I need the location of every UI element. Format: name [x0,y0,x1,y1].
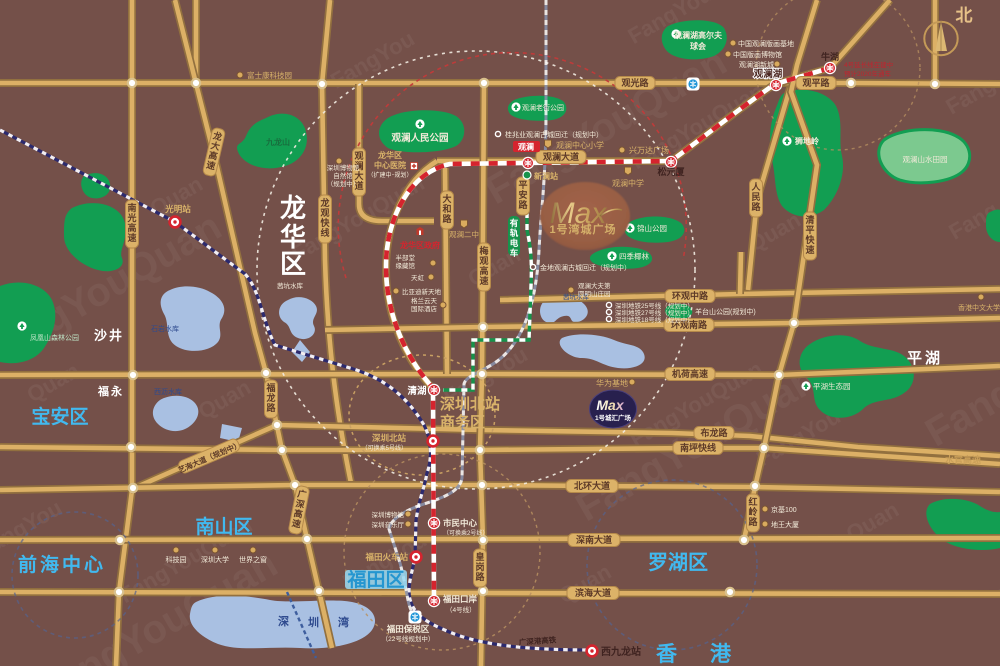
svg-text:西九龙站: 西九龙站 [601,645,641,658]
svg-text:梅观高速: 梅观高速 [479,245,488,286]
svg-text:大和路: 大和路 [441,193,452,224]
svg-text:深圳北站: 深圳北站 [372,433,407,443]
svg-text:观澜湖高尔夫: 观澜湖高尔夫 [674,30,723,40]
svg-text:深圳博物馆: 深圳博物馆 [372,510,405,519]
svg-text:观平路: 观平路 [802,77,830,88]
svg-text:北环大道: 北环大道 [574,480,610,491]
svg-text:科技园: 科技园 [166,555,187,564]
svg-text:人民路: 人民路 [750,181,761,212]
svg-text:滨海大道: 滨海大道 [575,587,611,598]
svg-text:天虹: 天虹 [411,273,425,282]
svg-text:北: 北 [956,6,973,25]
svg-text:球会: 球会 [690,41,706,51]
svg-text:观澜中学: 观澜中学 [612,178,644,188]
svg-text:南光高速: 南光高速 [126,202,136,243]
svg-text:商务区: 商务区 [440,413,485,431]
svg-text:清平快速: 清平快速 [805,214,815,255]
svg-text:平安路: 平安路 [518,180,528,210]
svg-text:深圳大学: 深圳大学 [201,555,229,564]
svg-text:中国观澜版画基地: 中国观澜版画基地 [738,39,794,48]
svg-text:观澜人民公园: 观澜人民公园 [390,132,448,144]
svg-text:深南大道: 深南大道 [576,534,612,545]
svg-text:深圳地铁27号线（规划中）: 深圳地铁27号线（规划中） [615,308,694,317]
svg-text:锦山公园: 锦山公园 [637,223,667,233]
svg-text:观光路: 观光路 [621,77,649,88]
svg-text:龙华区: 龙华区 [280,193,306,279]
svg-text:光明站: 光明站 [164,204,191,214]
svg-text:比亚迪新天地: 比亚迪新天地 [402,287,442,296]
svg-text:观澜湖新城: 观澜湖新城 [739,60,774,69]
svg-text:布龙路: 布龙路 [699,427,728,438]
svg-text:平湖生态园: 平湖生态园 [813,381,851,391]
svg-text:1号湾城广场: 1号湾城广场 [549,222,616,236]
svg-text:观澜大夫第: 观澜大夫第 [578,281,611,290]
svg-text:（可换乘2号线）: （可换乘2号线） [443,529,488,537]
svg-text:牛湖: 牛湖 [821,51,839,62]
svg-text:福田火车站: 福田火车站 [364,552,408,562]
svg-text:深圳北站: 深圳北站 [440,395,500,413]
svg-text:平湖: 平湖 [907,350,943,367]
svg-text:4号延长线在建中: 4号延长线在建中 [844,60,893,69]
svg-text:石岩水库: 石岩水库 [151,324,179,333]
svg-text:茜坑水库: 茜坑水库 [277,281,304,290]
svg-text:宝安区: 宝安区 [31,405,88,428]
svg-text:香港中文大学: 香港中文大学 [958,303,1000,312]
svg-text:深圳博物馆: 深圳博物馆 [327,163,360,172]
svg-text:观澜山水田园: 观澜山水田园 [903,154,948,164]
svg-text:半部堂: 半部堂 [396,253,416,262]
svg-text:福田区: 福田区 [346,568,404,591]
svg-text:湾: 湾 [338,615,349,629]
svg-text:桂兆业观澜古城回迁（规划中）: 桂兆业观澜古城回迁（规划中） [505,130,603,139]
svg-text:（22号线规划中）: （22号线规划中） [382,634,435,643]
svg-text:中国版画博物馆: 中国版画博物馆 [733,50,782,59]
svg-text:（扩建中･规划）: （扩建中･规划） [367,171,412,179]
svg-text:凤凰山森林公园: 凤凰山森林公园 [30,333,79,342]
svg-text:红岭路: 红岭路 [748,496,758,527]
svg-text:清湖: 清湖 [407,385,427,397]
svg-text:四季椰林: 四季椰林 [619,251,649,261]
svg-text:龙华区: 龙华区 [377,150,402,160]
svg-text:环观中路: 环观中路 [672,290,709,301]
svg-text:水官高速: 水官高速 [945,454,981,465]
svg-text:福龙路: 福龙路 [265,382,276,413]
svg-text:观澜老街公园: 观澜老街公园 [522,103,564,112]
svg-text:港: 港 [710,642,732,666]
svg-text:世界之窗: 世界之窗 [239,555,267,564]
svg-text:地王大厦: 地王大厦 [771,520,799,529]
svg-text:西沥水库: 西沥水库 [154,387,182,396]
svg-text:（规划中）: （规划中） [327,179,360,188]
svg-text:罗湖区: 罗湖区 [648,551,708,574]
svg-text:预计2020年通车: 预计2020年通车 [844,69,891,78]
svg-text:1号城汇广场: 1号城汇广场 [595,413,632,422]
svg-text:华为基地: 华为基地 [596,378,628,388]
svg-text:机荷高速: 机荷高速 [672,368,708,379]
svg-text:皇岗路: 皇岗路 [475,551,485,582]
svg-text:新澜站: 新澜站 [534,171,558,181]
svg-text:九龙山: 九龙山 [265,137,290,147]
svg-text:圳: 圳 [308,615,319,629]
svg-text:京基100: 京基100 [771,505,797,514]
svg-text:深圳音乐厅: 深圳音乐厅 [372,520,405,529]
svg-text:沙井: 沙井 [94,328,124,343]
svg-text:观澜: 观澜 [518,142,534,152]
svg-text:（可换乘5号线）: （可换乘5号线） [362,444,407,452]
svg-text:福永: 福永 [97,384,124,398]
svg-text:中心医院: 中心医院 [374,160,406,170]
svg-text:（4号线）: （4号线） [446,605,476,614]
svg-text:国际酒店: 国际酒店 [411,304,438,313]
svg-text:羊台山公园(规划中): 羊台山公园(规划中) [695,307,756,316]
svg-text:兴万达广场: 兴万达广场 [629,145,669,155]
svg-text:有轨电车: 有轨电车 [510,218,519,258]
svg-text:松元厦: 松元厦 [657,166,685,177]
svg-text:富士康科技园: 富士康科技园 [247,70,292,80]
svg-text:自然馆: 自然馆 [333,171,353,180]
svg-text:深: 深 [278,614,289,628]
svg-text:狮地岭: 狮地岭 [794,136,819,146]
svg-text:香: 香 [656,643,678,666]
svg-text:市民中心: 市民中心 [443,518,478,528]
svg-text:深圳地铁18号线（规划中）: 深圳地铁18号线（规划中） [615,315,694,324]
svg-text:南山区: 南山区 [195,516,252,538]
svg-text:金地观澜古城回迁（规划中）: 金地观澜古城回迁（规划中） [540,263,631,272]
svg-text:前海中心: 前海中心 [18,553,106,576]
svg-text:龙华区政府: 龙华区政府 [399,240,440,250]
svg-text:深圳地铁25号线（规划中）: 深圳地铁25号线（规划中） [615,301,694,310]
svg-text:Max: Max [596,397,624,413]
svg-text:福田保税区: 福田保税区 [386,624,430,634]
svg-text:龙观快线: 龙观快线 [319,197,330,238]
svg-text:观澜大道: 观澜大道 [543,151,579,162]
svg-text:观澜二中: 观澜二中 [449,229,479,239]
svg-text:圆明山庄园: 圆明山庄园 [578,289,611,298]
svg-text:观澜中心小学: 观澜中心小学 [556,140,604,150]
svg-text:格兰云天: 格兰云天 [411,296,438,305]
svg-text:观澜湖: 观澜湖 [753,68,783,80]
svg-text:缘藏馆: 缘藏馆 [396,261,416,270]
svg-text:福田口岸: 福田口岸 [442,594,478,604]
svg-text:南坪快线: 南坪快线 [680,442,716,453]
